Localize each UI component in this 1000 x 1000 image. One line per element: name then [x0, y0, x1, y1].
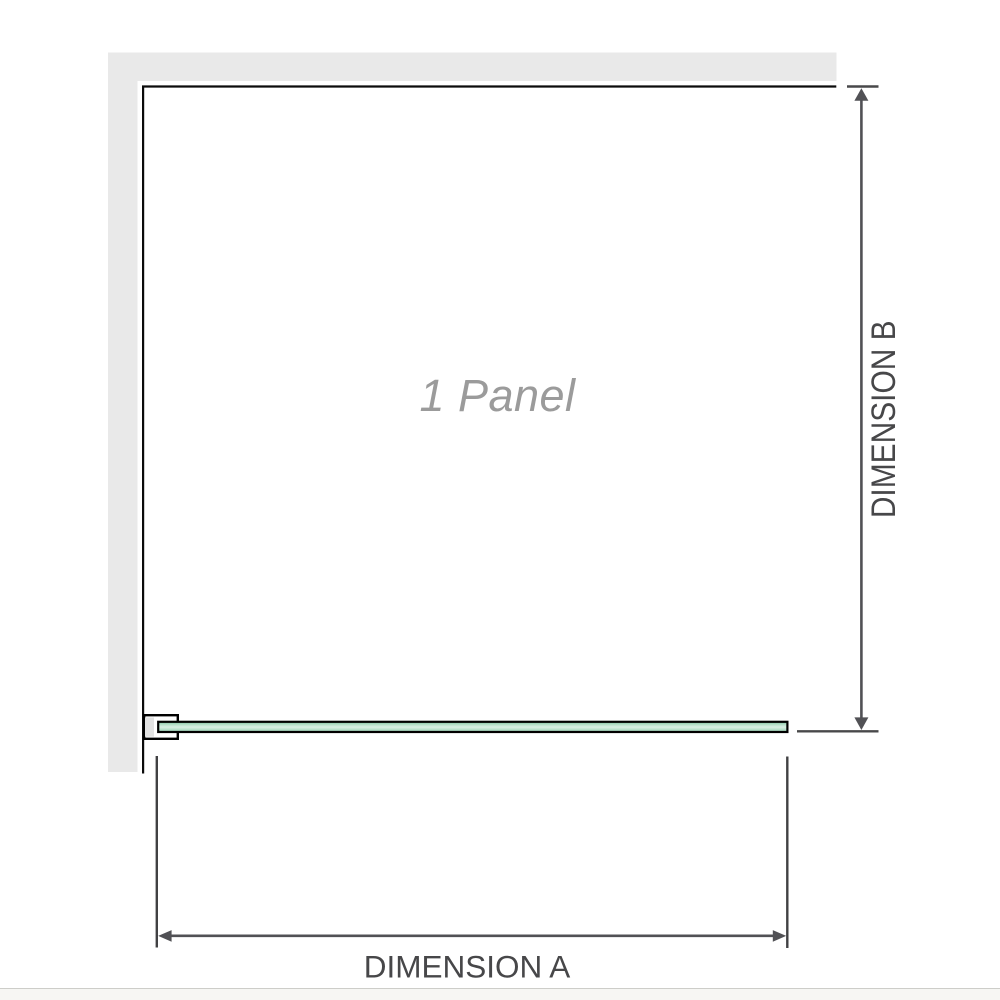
- svg-text:DIMENSION A: DIMENSION A: [364, 948, 571, 984]
- svg-text:1 Panel: 1 Panel: [419, 370, 577, 421]
- svg-text:DIMENSION B: DIMENSION B: [864, 320, 902, 518]
